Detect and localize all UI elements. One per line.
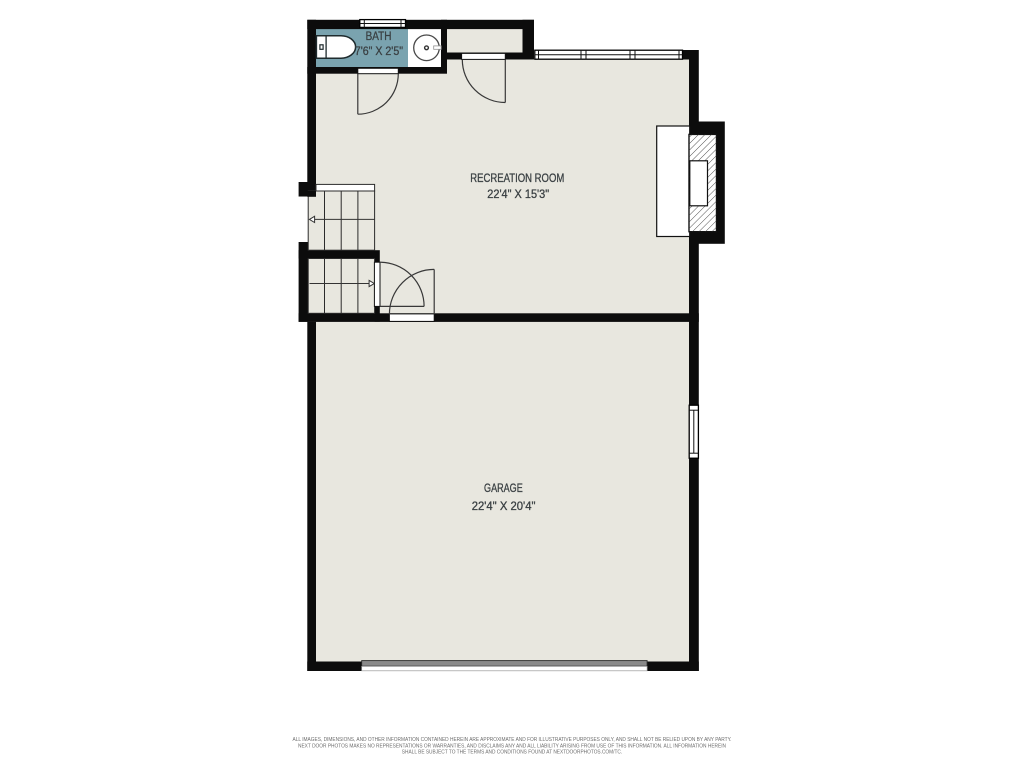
svg-text:RECREATION ROOM: RECREATION ROOM <box>470 171 564 185</box>
svg-text:7'6" X 2'5": 7'6" X 2'5" <box>355 44 403 58</box>
svg-text:SHALL BE SUBJECT TO THE TERMS: SHALL BE SUBJECT TO THE TERMS AND CONDIT… <box>402 750 622 756</box>
svg-text:BATH: BATH <box>366 29 392 43</box>
svg-text:GARAGE: GARAGE <box>484 481 523 495</box>
svg-text:22'4" X 20'4": 22'4" X 20'4" <box>472 499 536 513</box>
svg-text:22'4" X 15'3": 22'4" X 15'3" <box>487 187 549 201</box>
svg-text:ALL IMAGES, DIMENSIONS, AND OT: ALL IMAGES, DIMENSIONS, AND OTHER INFORM… <box>293 737 732 743</box>
